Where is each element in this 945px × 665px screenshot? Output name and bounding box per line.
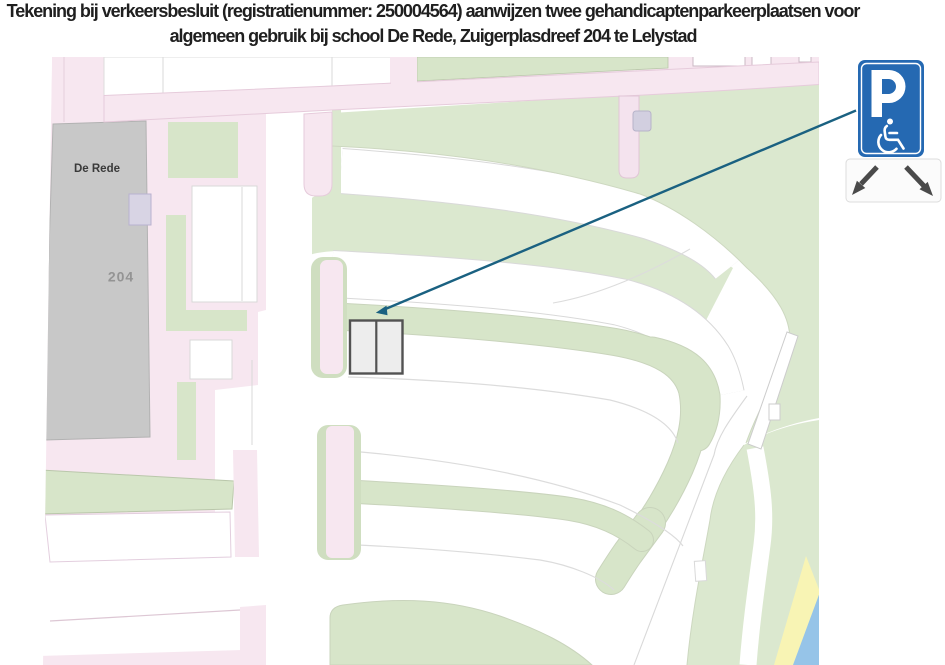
svg-text:De Rede: De Rede	[74, 163, 120, 175]
svg-text:204: 204	[108, 269, 134, 285]
